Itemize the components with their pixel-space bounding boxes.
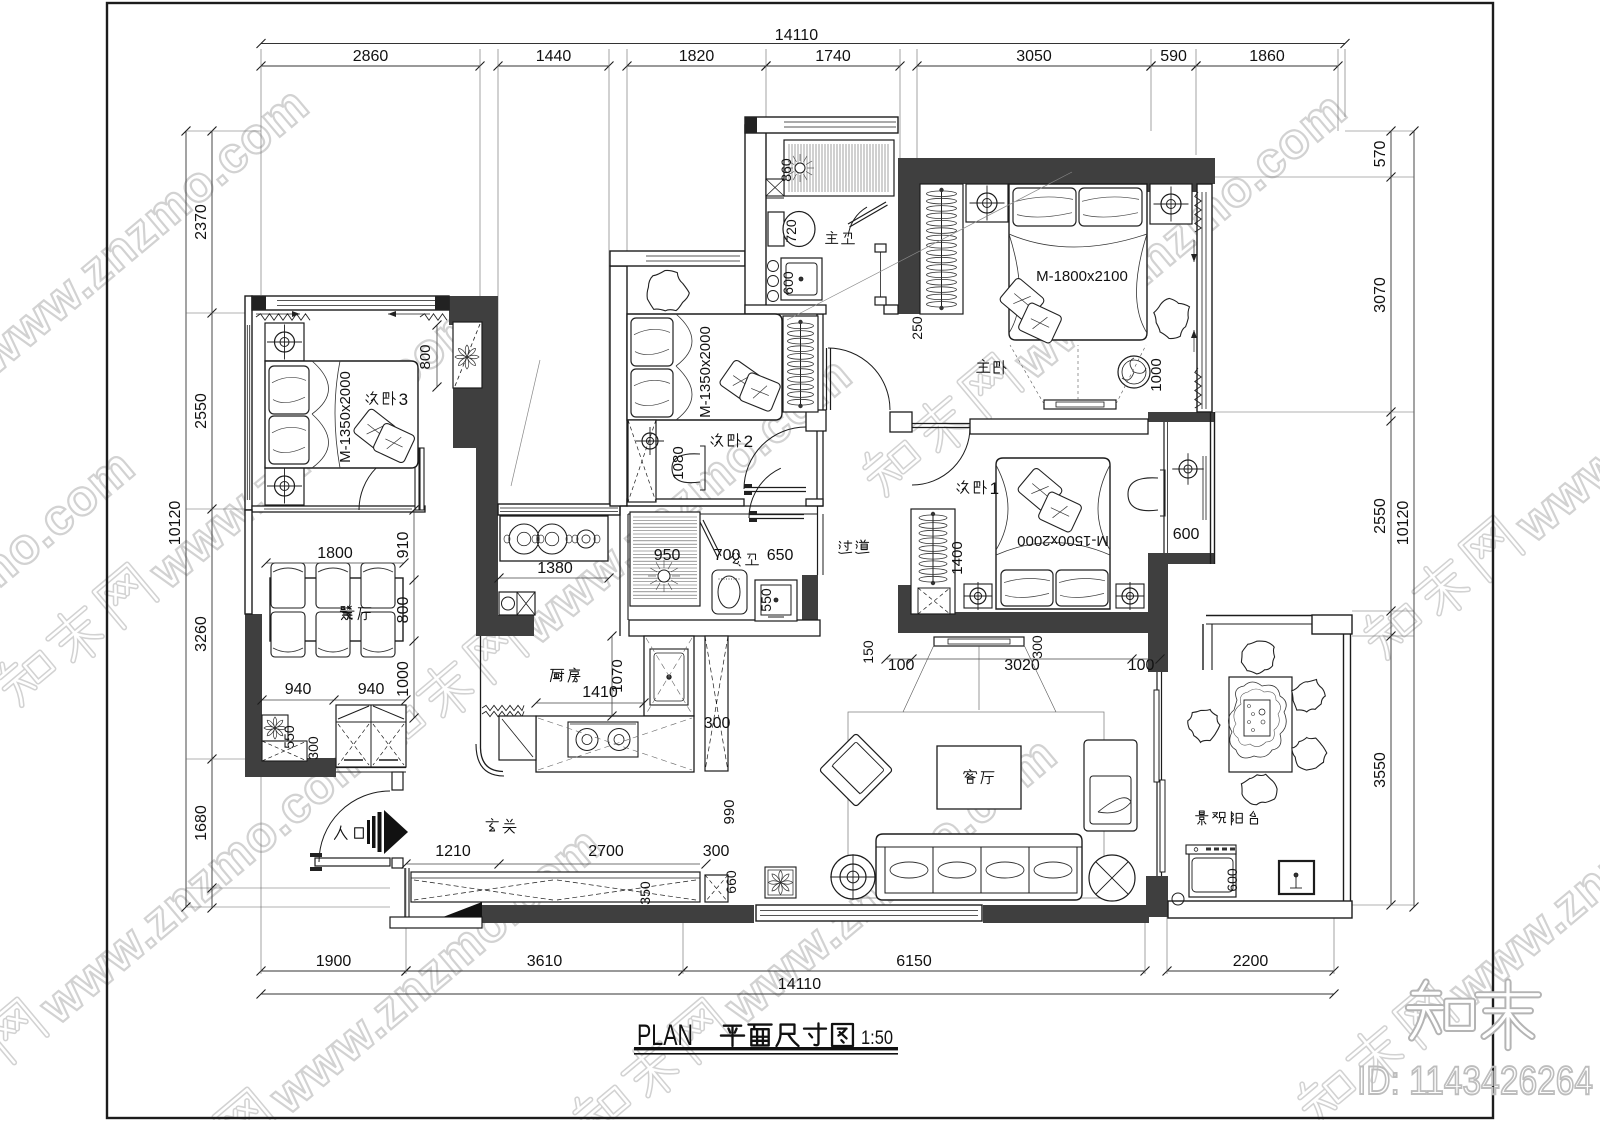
svg-text:1000: 1000 xyxy=(1148,358,1165,391)
svg-text:800: 800 xyxy=(395,597,412,624)
svg-text:M-1350x2000: M-1350x2000 xyxy=(697,326,714,418)
svg-text:250: 250 xyxy=(909,316,925,340)
svg-text:1080: 1080 xyxy=(670,446,687,479)
svg-text:860: 860 xyxy=(778,158,794,182)
svg-text:2370: 2370 xyxy=(193,204,210,240)
svg-text:2550: 2550 xyxy=(1372,498,1389,534)
svg-text:570: 570 xyxy=(1372,141,1389,168)
svg-text:1900: 1900 xyxy=(316,953,352,970)
svg-text:350: 350 xyxy=(637,881,653,905)
svg-text:1210: 1210 xyxy=(435,843,471,860)
svg-text:1680: 1680 xyxy=(193,805,210,841)
svg-text:590: 590 xyxy=(1160,48,1187,65)
svg-text:660: 660 xyxy=(723,870,739,894)
svg-text:300: 300 xyxy=(1029,635,1045,659)
svg-text:2700: 2700 xyxy=(588,843,624,860)
svg-text:3610: 3610 xyxy=(527,953,563,970)
svg-text:1380: 1380 xyxy=(537,560,573,577)
svg-text:3070: 3070 xyxy=(1372,277,1389,313)
svg-text:550: 550 xyxy=(758,588,774,612)
svg-text:940: 940 xyxy=(285,681,312,698)
svg-text:1400: 1400 xyxy=(949,541,966,574)
svg-text:M-1500x2000: M-1500x2000 xyxy=(1017,532,1109,549)
svg-text:2860: 2860 xyxy=(353,48,389,65)
svg-text:600: 600 xyxy=(780,271,796,295)
svg-text:3260: 3260 xyxy=(193,616,210,652)
svg-text:650: 650 xyxy=(767,547,794,564)
svg-text:950: 950 xyxy=(654,547,681,564)
svg-text:2550: 2550 xyxy=(193,393,210,429)
svg-text:700: 700 xyxy=(714,547,741,564)
svg-text:720: 720 xyxy=(783,219,799,243)
svg-text:M-1800x2100: M-1800x2100 xyxy=(1036,268,1128,285)
svg-text:14110: 14110 xyxy=(775,27,818,44)
svg-text:550: 550 xyxy=(281,725,297,749)
svg-text:1860: 1860 xyxy=(1249,48,1285,65)
svg-text:600: 600 xyxy=(1224,868,1240,892)
svg-text:3550: 3550 xyxy=(1372,752,1389,788)
svg-text:14110: 14110 xyxy=(778,976,821,993)
svg-text:910: 910 xyxy=(395,532,412,559)
svg-text:600: 600 xyxy=(1173,526,1200,543)
svg-text:990: 990 xyxy=(721,799,738,824)
svg-text:10120: 10120 xyxy=(167,501,184,546)
svg-text:100: 100 xyxy=(888,657,915,674)
svg-text:2: 2 xyxy=(744,432,753,451)
svg-text:1800: 1800 xyxy=(317,545,353,562)
svg-text:800: 800 xyxy=(417,344,434,369)
svg-text:1000: 1000 xyxy=(395,661,412,697)
svg-text:150: 150 xyxy=(860,640,876,664)
svg-text:2200: 2200 xyxy=(1233,953,1269,970)
svg-text:3050: 3050 xyxy=(1016,48,1052,65)
svg-text:1: 1 xyxy=(990,479,999,498)
svg-text:300: 300 xyxy=(305,736,321,760)
svg-text:ID: 1143426264: ID: 1143426264 xyxy=(1357,1059,1593,1103)
svg-text:6150: 6150 xyxy=(896,953,932,970)
svg-text:3: 3 xyxy=(399,390,408,409)
svg-text:10120: 10120 xyxy=(1395,501,1412,546)
svg-text:940: 940 xyxy=(358,681,385,698)
svg-text:1:50: 1:50 xyxy=(861,1028,893,1049)
svg-text:300: 300 xyxy=(703,843,730,860)
svg-text:300: 300 xyxy=(704,715,731,732)
svg-text:M-1350x2000: M-1350x2000 xyxy=(337,371,354,463)
svg-text:1740: 1740 xyxy=(815,48,851,65)
svg-text:1820: 1820 xyxy=(679,48,715,65)
svg-text:1440: 1440 xyxy=(536,48,572,65)
svg-text:1070: 1070 xyxy=(609,659,626,692)
